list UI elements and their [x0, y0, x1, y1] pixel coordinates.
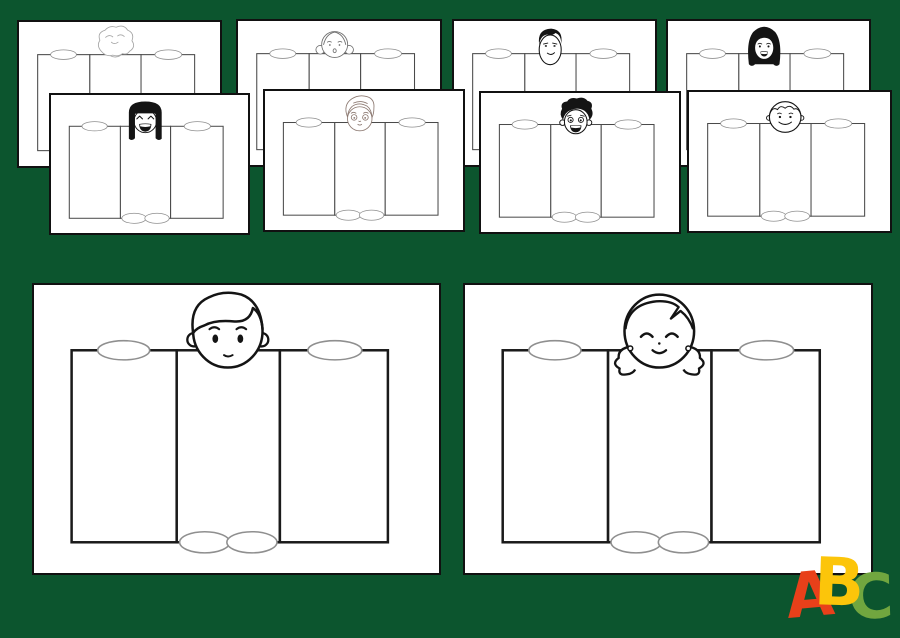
left-tab-oval: [700, 49, 726, 59]
right-tab-oval: [308, 341, 362, 360]
three-panel-organizer: [265, 91, 463, 230]
boy-black-short-hair-face-icon: [539, 29, 562, 65]
right-hand-oval: [145, 213, 169, 223]
center-panel: [120, 126, 170, 218]
left-hand-oval: [122, 213, 146, 223]
right-tab-oval: [590, 49, 617, 59]
right-panel: [385, 123, 438, 216]
right-tab-oval: [399, 118, 425, 127]
right-panel: [601, 125, 654, 218]
girl-pigtails-face-icon: [615, 295, 703, 375]
worksheet-card-mid-1: [49, 93, 250, 235]
right-hand-oval: [575, 212, 600, 222]
left-tab-oval: [296, 118, 321, 127]
left-tab-oval: [98, 341, 150, 360]
right-tab-oval: [804, 49, 831, 59]
left-hand-oval: [552, 212, 577, 222]
right-hand-oval: [785, 211, 810, 221]
right-tab-oval: [740, 341, 794, 360]
worksheet-collage-background: ABC: [0, 0, 900, 638]
center-panel: [335, 123, 385, 216]
right-tab-oval: [615, 120, 641, 129]
right-hand-oval: [359, 210, 384, 220]
worksheet-card-large-2: [463, 283, 873, 575]
center-panel: [608, 350, 711, 542]
worksheet-card-mid-2: [263, 89, 465, 232]
three-panel-organizer: [481, 93, 679, 232]
right-panel: [811, 124, 865, 217]
boy-sketch-hair-face-icon: [346, 96, 374, 131]
logo-letter-b: B: [813, 549, 866, 617]
three-panel-organizer: [689, 92, 890, 231]
abc-logo: ABC: [772, 548, 898, 638]
right-hand-oval: [658, 532, 708, 553]
right-panel: [280, 350, 388, 542]
three-panel-organizer: [34, 285, 439, 573]
girl-black-bob-face-icon: [748, 27, 780, 66]
center-panel: [760, 124, 811, 217]
right-hand-oval: [227, 532, 277, 553]
left-panel: [72, 350, 177, 542]
center-panel: [551, 125, 601, 218]
center-panel: [177, 350, 280, 542]
left-hand-oval: [761, 211, 786, 221]
left-panel: [283, 123, 334, 216]
left-hand-oval: [336, 210, 361, 220]
right-tab-oval: [184, 122, 210, 131]
worksheet-card-mid-3: [479, 91, 681, 234]
left-tab-oval: [82, 122, 107, 131]
right-tab-oval: [375, 49, 402, 59]
left-tab-oval: [270, 49, 296, 59]
right-tab-oval: [825, 119, 852, 128]
girl-side-buns-face-icon: [316, 32, 354, 58]
left-panel: [503, 350, 608, 542]
right-tab-oval: [155, 50, 182, 60]
left-panel: [708, 124, 760, 217]
left-tab-oval: [529, 341, 581, 360]
worksheet-card-large-1: [32, 283, 441, 575]
left-panel: [499, 125, 550, 218]
left-hand-oval: [180, 532, 230, 553]
right-panel: [712, 350, 820, 542]
left-hand-oval: [611, 532, 661, 553]
left-tab-oval: [721, 119, 747, 128]
left-panel: [69, 126, 120, 218]
three-panel-organizer: [465, 285, 871, 573]
left-tab-oval: [486, 49, 512, 59]
three-panel-organizer: [51, 95, 248, 233]
left-tab-oval: [51, 50, 77, 60]
girl-wavy-hair-face-icon: [98, 26, 133, 57]
right-panel: [171, 126, 224, 218]
left-tab-oval: [512, 120, 537, 129]
worksheet-card-mid-4: [687, 90, 892, 233]
